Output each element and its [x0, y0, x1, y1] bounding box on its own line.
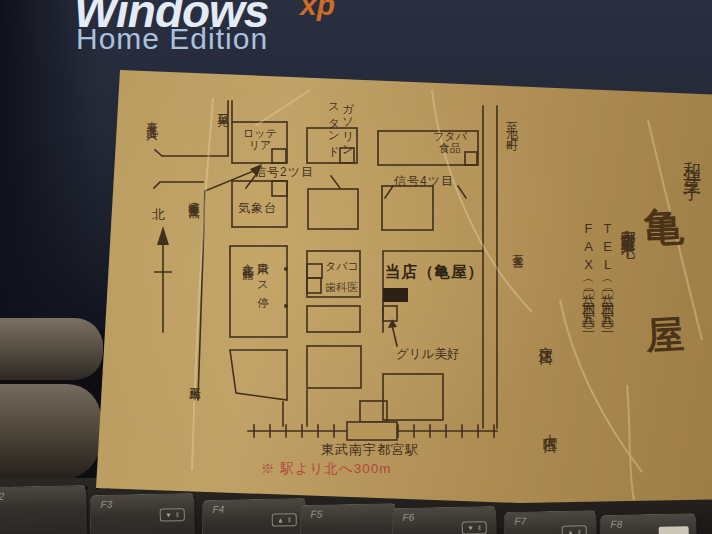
key-f4-label: F4	[212, 504, 224, 515]
map-label-gas-station: ガソリン スタンド	[327, 95, 355, 151]
key-f5-label: F5	[310, 509, 322, 520]
map-label-tobacco: タバコ	[325, 260, 359, 272]
key-f8-sticker	[659, 526, 689, 534]
map-label-grill-miyoshi: グリル美好	[396, 348, 459, 362]
map-label-dental: 歯科医	[325, 281, 358, 293]
map-label-tohoku-entrance: 東北道入口	[144, 112, 159, 125]
map-label-takiyacho-crossing: 滝谷町交差点	[186, 192, 201, 198]
map-label-to-suzumenomiya: 至雀宮	[510, 246, 525, 249]
map-label-busstop-culturehall: 東口バス停 文化会館	[240, 254, 270, 290]
key-f4: F4 ▲ ‖	[201, 498, 308, 534]
map-label-to-ikegamicho: 至池上町	[503, 112, 520, 136]
shop-fax: FAX（〇二八）六三四ー五八〇三	[579, 221, 597, 314]
key-f7-label: F7	[514, 516, 526, 527]
shop-type-text: 和洋菓子	[680, 146, 704, 178]
shop-name-calligraphy-kame: 亀	[643, 199, 686, 256]
volume-down-icon: ▼ ‖	[160, 508, 185, 522]
shop-name-calligraphy-ya: 屋	[645, 309, 686, 362]
brightness-up-icon: ▲ ‖	[562, 525, 587, 534]
volume-up-icon: ▲ ‖	[272, 513, 297, 527]
shop-tel: TEL（〇二八）六三四ー五八〇三	[598, 221, 616, 314]
laptop-hinge-bar-top	[0, 318, 103, 380]
map-label-to-nikko: 至日光	[215, 104, 230, 109]
map-label-signal-4: 信号4ツ目	[394, 175, 454, 188]
map-label-north: 北	[152, 208, 165, 222]
key-f2: F2	[0, 485, 89, 534]
key-f2-label: F2	[0, 491, 4, 502]
map-label-futaba-foods: フタバ 食品	[424, 130, 476, 154]
windows-xp-mark: xp	[300, 0, 335, 22]
key-f5: F5	[299, 503, 398, 534]
map-label-our-shop: 当店（亀屋）	[385, 263, 484, 280]
map-note-distance: ※ 駅より北へ300m	[261, 462, 391, 477]
map-label-station-name: 東武南宇都宮駅	[321, 443, 419, 457]
key-f7: F7 ▲ ‖	[503, 510, 598, 534]
map-label-lotteria: ロッテ リア	[237, 127, 283, 151]
closed-day-label: 定休日	[536, 334, 555, 343]
key-f3: F3 ▼ ‖	[89, 493, 196, 534]
key-f3-label: F3	[100, 499, 112, 510]
key-f6: F6 ▼ ‖	[391, 506, 498, 534]
north-arrowhead	[157, 226, 169, 245]
key-f6-label: F6	[402, 512, 414, 523]
map-label-weather-station: 気象台	[238, 202, 277, 215]
key-f8: F8	[599, 513, 698, 534]
map-label-to-tochigi: 至栃木	[187, 378, 202, 381]
map-label-signal-2: 信号2ツ目	[254, 166, 314, 179]
closed-day-value: 火曜日	[540, 422, 559, 431]
shop-location-marker	[383, 288, 408, 302]
home-edition-text: Home Edition	[76, 22, 268, 56]
shop-address: 宇都宮市菊水町六ー十七	[618, 218, 637, 235]
laptop-hinge-bar-bottom	[0, 384, 101, 480]
key-f8-label: F8	[610, 519, 622, 530]
brightness-down-icon: ▼ ‖	[462, 521, 487, 534]
station-box	[347, 422, 397, 440]
